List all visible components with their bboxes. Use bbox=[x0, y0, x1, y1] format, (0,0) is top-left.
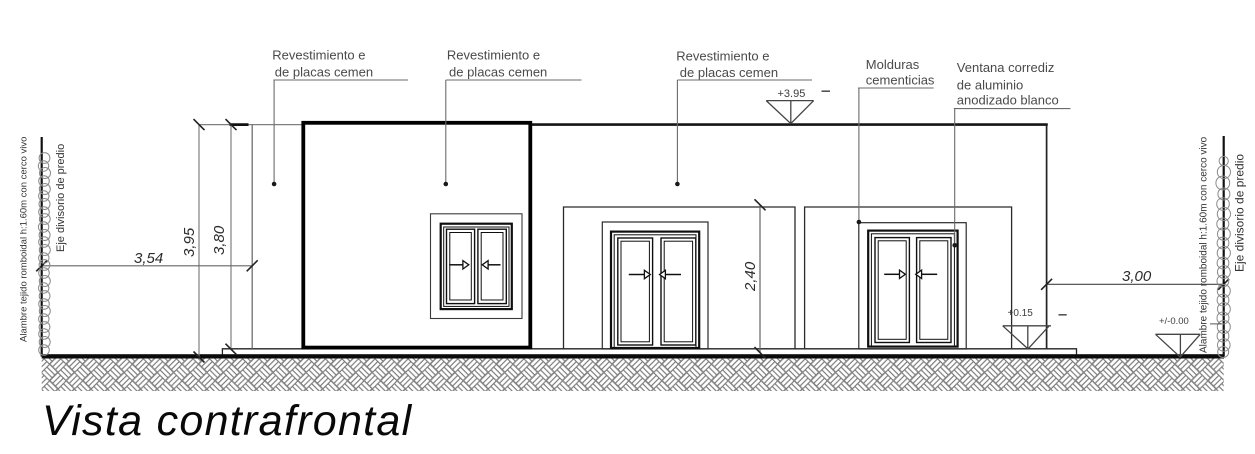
svg-text:Revestimiento e: Revestimiento e bbox=[447, 47, 540, 62]
svg-text:3,54: 3,54 bbox=[134, 250, 163, 267]
svg-text:3,95: 3,95 bbox=[181, 227, 198, 257]
svg-text:Molduras: Molduras bbox=[866, 57, 920, 72]
svg-text:de placas cemen: de placas cemen bbox=[680, 65, 778, 80]
svg-text:anodizado blanco: anodizado blanco bbox=[957, 93, 1059, 108]
svg-text:Eje divisorio de predio: Eje divisorio de predio bbox=[1233, 154, 1247, 272]
svg-text:+3.95: +3.95 bbox=[778, 88, 806, 100]
svg-text:Revestimiento e: Revestimiento e bbox=[676, 48, 769, 63]
svg-text:2,40: 2,40 bbox=[742, 261, 759, 292]
svg-text:Alambre tejido romboidal h:1.6: Alambre tejido romboidal h:1.60m con cer… bbox=[19, 137, 30, 342]
svg-text:de placas cemen: de placas cemen bbox=[275, 64, 373, 79]
svg-text:Revestimiento e: Revestimiento e bbox=[272, 47, 365, 62]
svg-text:+0.15: +0.15 bbox=[1008, 308, 1034, 319]
svg-text:de aluminio: de aluminio bbox=[957, 77, 1024, 92]
svg-text:de placas cemen: de placas cemen bbox=[449, 64, 547, 79]
svg-text:Eje divisorio de predio: Eje divisorio de predio bbox=[55, 144, 67, 252]
svg-text:Ventana corrediz: Ventana corrediz bbox=[957, 60, 1055, 75]
svg-text:Vista contrafrontal: Vista contrafrontal bbox=[42, 397, 413, 445]
svg-text:cementicias: cementicias bbox=[866, 73, 935, 88]
svg-text:3,80: 3,80 bbox=[211, 225, 228, 255]
svg-text:Alambre tejido romboidal h:1.6: Alambre tejido romboidal h:1.60m con cer… bbox=[1199, 136, 1210, 353]
svg-text:+/-0.00: +/-0.00 bbox=[1159, 316, 1189, 327]
svg-text:3,00: 3,00 bbox=[1122, 268, 1152, 285]
